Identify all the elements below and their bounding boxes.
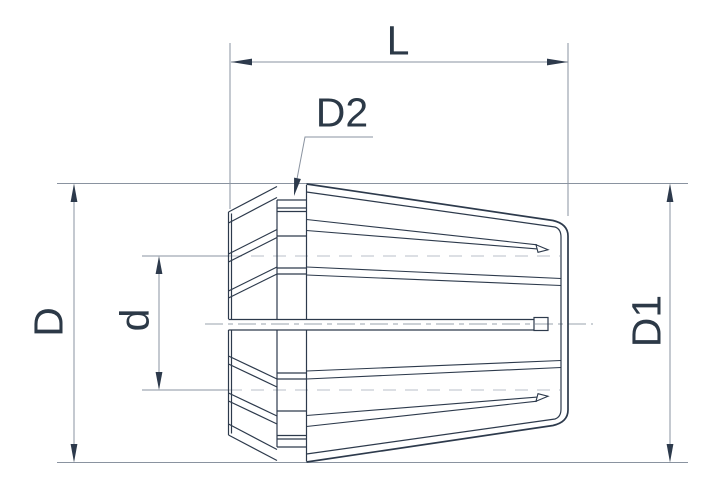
extension-lines xyxy=(57,43,688,463)
label-front-diameter-D1: D1 xyxy=(627,295,668,347)
label-length-L: L xyxy=(387,21,410,62)
collet-body-outline xyxy=(307,184,569,462)
label-rear-diameter-D: D xyxy=(29,307,70,337)
collet-linework xyxy=(0,0,724,488)
collet-slots xyxy=(307,220,562,427)
dimension-arrowheads xyxy=(71,59,674,463)
label-groove-diameter-D2: D2 xyxy=(316,93,368,134)
technical-drawing: L D2 D d D1 xyxy=(0,0,724,488)
label-bore-diameter-d: d xyxy=(115,309,156,332)
collet-body-details xyxy=(307,192,562,454)
collet-groove xyxy=(277,185,307,462)
